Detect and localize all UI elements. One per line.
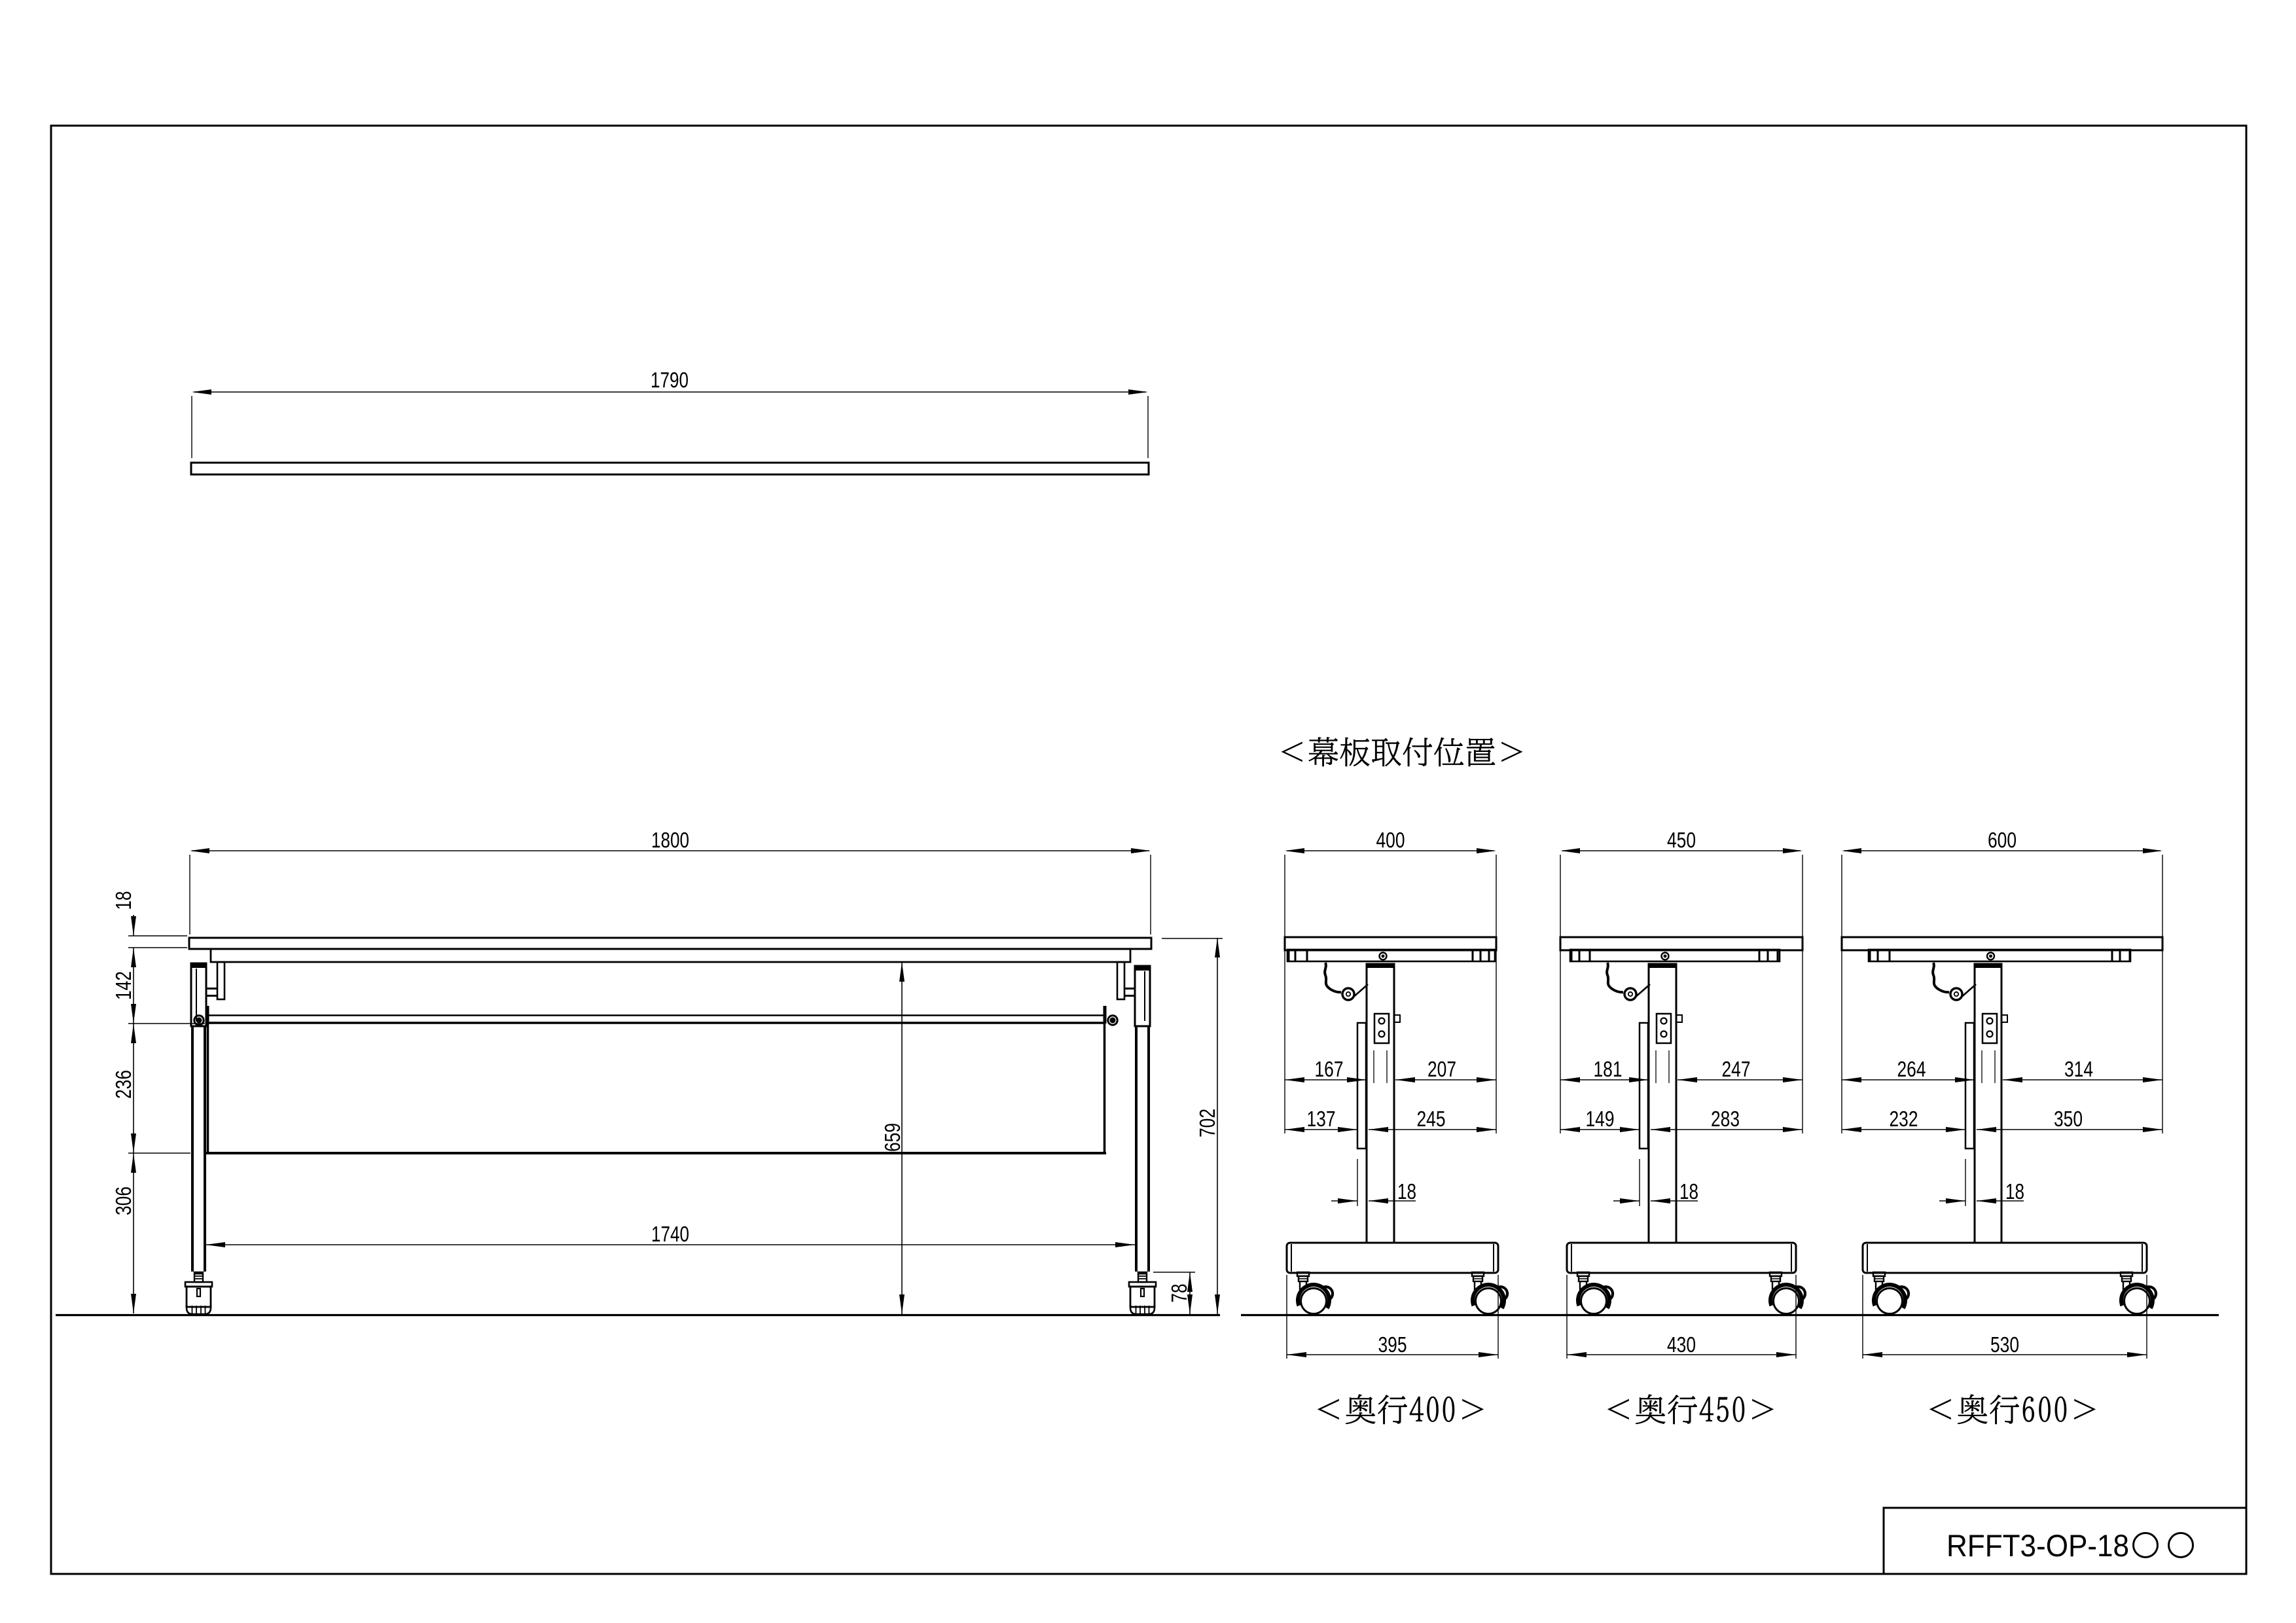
svg-text:78: 78 xyxy=(1167,1284,1191,1303)
svg-text:236: 236 xyxy=(111,1070,135,1099)
svg-text:264: 264 xyxy=(1897,1057,1926,1081)
svg-text:RFFT3-OP-18: RFFT3-OP-18 xyxy=(1946,1528,2129,1563)
svg-text:247: 247 xyxy=(1722,1057,1751,1081)
svg-text:142: 142 xyxy=(111,971,135,1000)
svg-text:600: 600 xyxy=(1988,828,2017,852)
svg-text:530: 530 xyxy=(1990,1332,2019,1357)
svg-text:350: 350 xyxy=(2054,1107,2083,1131)
svg-text:450: 450 xyxy=(1667,828,1696,852)
svg-text:167: 167 xyxy=(1315,1057,1344,1081)
svg-text:314: 314 xyxy=(2064,1057,2093,1081)
svg-text:18: 18 xyxy=(111,891,135,910)
svg-text:18: 18 xyxy=(1397,1179,1416,1204)
svg-text:1740: 1740 xyxy=(651,1222,689,1246)
svg-text:659: 659 xyxy=(880,1123,905,1152)
svg-text:1790: 1790 xyxy=(651,368,689,392)
svg-text:430: 430 xyxy=(1667,1332,1696,1357)
svg-text:245: 245 xyxy=(1417,1107,1446,1131)
svg-text:18: 18 xyxy=(1679,1179,1698,1204)
svg-text:137: 137 xyxy=(1307,1107,1336,1131)
svg-text:232: 232 xyxy=(1890,1107,1918,1131)
svg-text:400: 400 xyxy=(1376,828,1405,852)
svg-text:283: 283 xyxy=(1711,1107,1740,1131)
svg-text:207: 207 xyxy=(1427,1057,1456,1081)
svg-text:149: 149 xyxy=(1586,1107,1615,1131)
svg-text:702: 702 xyxy=(1195,1109,1219,1137)
svg-text:18: 18 xyxy=(2005,1179,2024,1204)
svg-text:395: 395 xyxy=(1378,1332,1407,1357)
svg-text:306: 306 xyxy=(111,1186,135,1215)
svg-text:1800: 1800 xyxy=(651,828,689,852)
svg-text:181: 181 xyxy=(1594,1057,1623,1081)
